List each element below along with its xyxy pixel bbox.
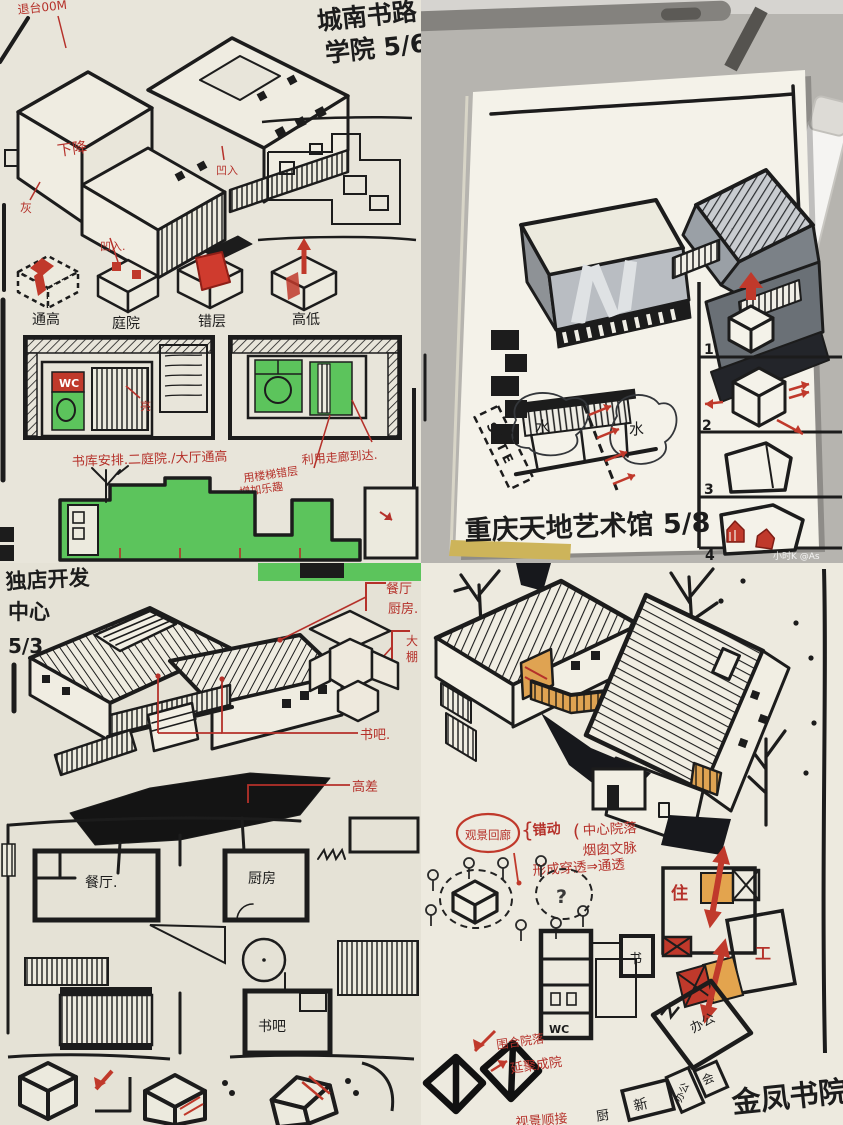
view-gallery-note: 观景回廊 [465, 828, 511, 842]
step-number-1: 1 [704, 342, 714, 358]
edge-block [0, 527, 14, 542]
work-label: 工 [755, 944, 771, 963]
plan-office2-label: 办公 [672, 1081, 692, 1105]
height-note: 高差 [352, 779, 378, 795]
view-seq-note: 视景顺接 [515, 1111, 568, 1125]
plan-meeting-label: 会 [700, 1070, 716, 1087]
plan-office-label: 办公 [688, 1011, 718, 1036]
jinfeng-sketch-svg: 观景回廊 { 错动 ( 中心院落 烟囱文脉 形成穿透⇒通透 ? [421, 563, 843, 1125]
pen-tip [724, 7, 767, 72]
enclosed-note: 围合院落 [495, 1030, 545, 1052]
watermark: 小时K @As [773, 550, 820, 562]
shed-note-2: 棚 [406, 649, 418, 664]
shed-note-1: 大 [406, 634, 418, 648]
plan-wc-label: WC [549, 1023, 569, 1036]
strategy-note: 书库安排.二庭院./大厅通高 [72, 449, 228, 470]
bookbar-note: 书吧. [360, 728, 390, 743]
plan-kitchen-label: 厨 [595, 1108, 610, 1125]
gray-label: 灰 [20, 201, 32, 215]
concept-label-2: 庭院 [112, 315, 140, 332]
concept-label-4: 高低 [292, 311, 320, 328]
question-mark: ? [556, 886, 567, 908]
plan-new-label: 新 [632, 1096, 649, 1115]
sketchbook-photo-collage: 退台00M 下降 凹入 灰 凹入. 城南书路 学院 5/6 [0, 0, 843, 1125]
step-number-3: 3 [704, 482, 714, 498]
kitchen-note: 厨房. [388, 601, 418, 617]
quadrant-bottom-left-center-sketch: 独店开发 中心 5/3 餐厅 厨房. [0, 563, 421, 1125]
recess-a-label: 凹入 [216, 164, 238, 177]
margin-line [824, 569, 825, 1053]
center-sketch-svg: 独店开发 中心 5/3 餐厅 厨房. [0, 563, 421, 1125]
chimney-note: 烟囱文脉 [582, 840, 637, 859]
center-axonometric-building [30, 608, 342, 873]
quadrant-bottom-right-academy-sketch: 观景回廊 { 错动 ( 中心院落 烟囱文脉 形成穿透⇒通透 ? [421, 563, 843, 1125]
title-line2: 中心 [8, 600, 50, 624]
center-floor-plan: 餐厅. 厨房 书吧 [2, 818, 418, 1053]
concept-label-3: 错层 [198, 314, 226, 330]
plan-bookbar-label: 书吧 [258, 1019, 286, 1035]
edge-block [0, 545, 14, 561]
floor-plan-right [230, 337, 414, 490]
art-museum-sketch-svg: 水 水 SITE 1 2 3 4 [421, 0, 843, 563]
water-label-2: 水 [629, 420, 644, 438]
wc-label: WC [59, 377, 79, 390]
corridor-note: 利用走廊到达. [301, 447, 378, 467]
black-plan-shapes [426, 1043, 539, 1111]
jinfeng-title: 金凤书院 [729, 1074, 843, 1120]
water-label-1: 水 [535, 418, 550, 436]
page-title: 城南书路 学院 5/6 [316, 0, 421, 68]
dining-note: 餐厅 [386, 581, 412, 597]
courtyard-center-note: 中心院落 [582, 820, 637, 839]
red-notes-cluster: 观景回廊 { 错动 ( 中心院落 烟囱文脉 形成穿透⇒通透 [457, 814, 638, 886]
black-blob [300, 563, 344, 578]
paren-glyph: ( [573, 821, 580, 842]
step-number-2: 2 [702, 418, 712, 434]
title-line1: 独店开发 [5, 566, 91, 594]
concept-label-1: 通高 [32, 311, 60, 328]
floor-plan-left: WC 亮 [25, 337, 213, 438]
quadrant-top-left-academy-sketch: 退台00M 下降 凹入 灰 凹入. 城南书路 学院 5/6 [0, 0, 421, 563]
plan-dining-label: 餐厅. [85, 875, 117, 891]
academy-sketch-svg: 退台00M 下降 凹入 灰 凹入. 城南书路 学院 5/6 [0, 0, 421, 563]
title-line2: 学院 5/6 [324, 28, 421, 68]
small-tower [593, 769, 645, 809]
plan-kitchen-label: 厨房 [248, 871, 276, 887]
green-section-sketch [60, 466, 417, 560]
corner-note: 退台00M [17, 0, 68, 17]
step-number-4: 4 [705, 548, 715, 563]
bright-label: 亮 [140, 399, 151, 413]
cube-studies-row [8, 1055, 414, 1125]
live-label: 住 [671, 883, 688, 904]
shift-note: 错动 [532, 820, 561, 839]
quadrant-top-right-art-museum-photo: 水 水 SITE 1 2 3 4 [421, 0, 843, 563]
